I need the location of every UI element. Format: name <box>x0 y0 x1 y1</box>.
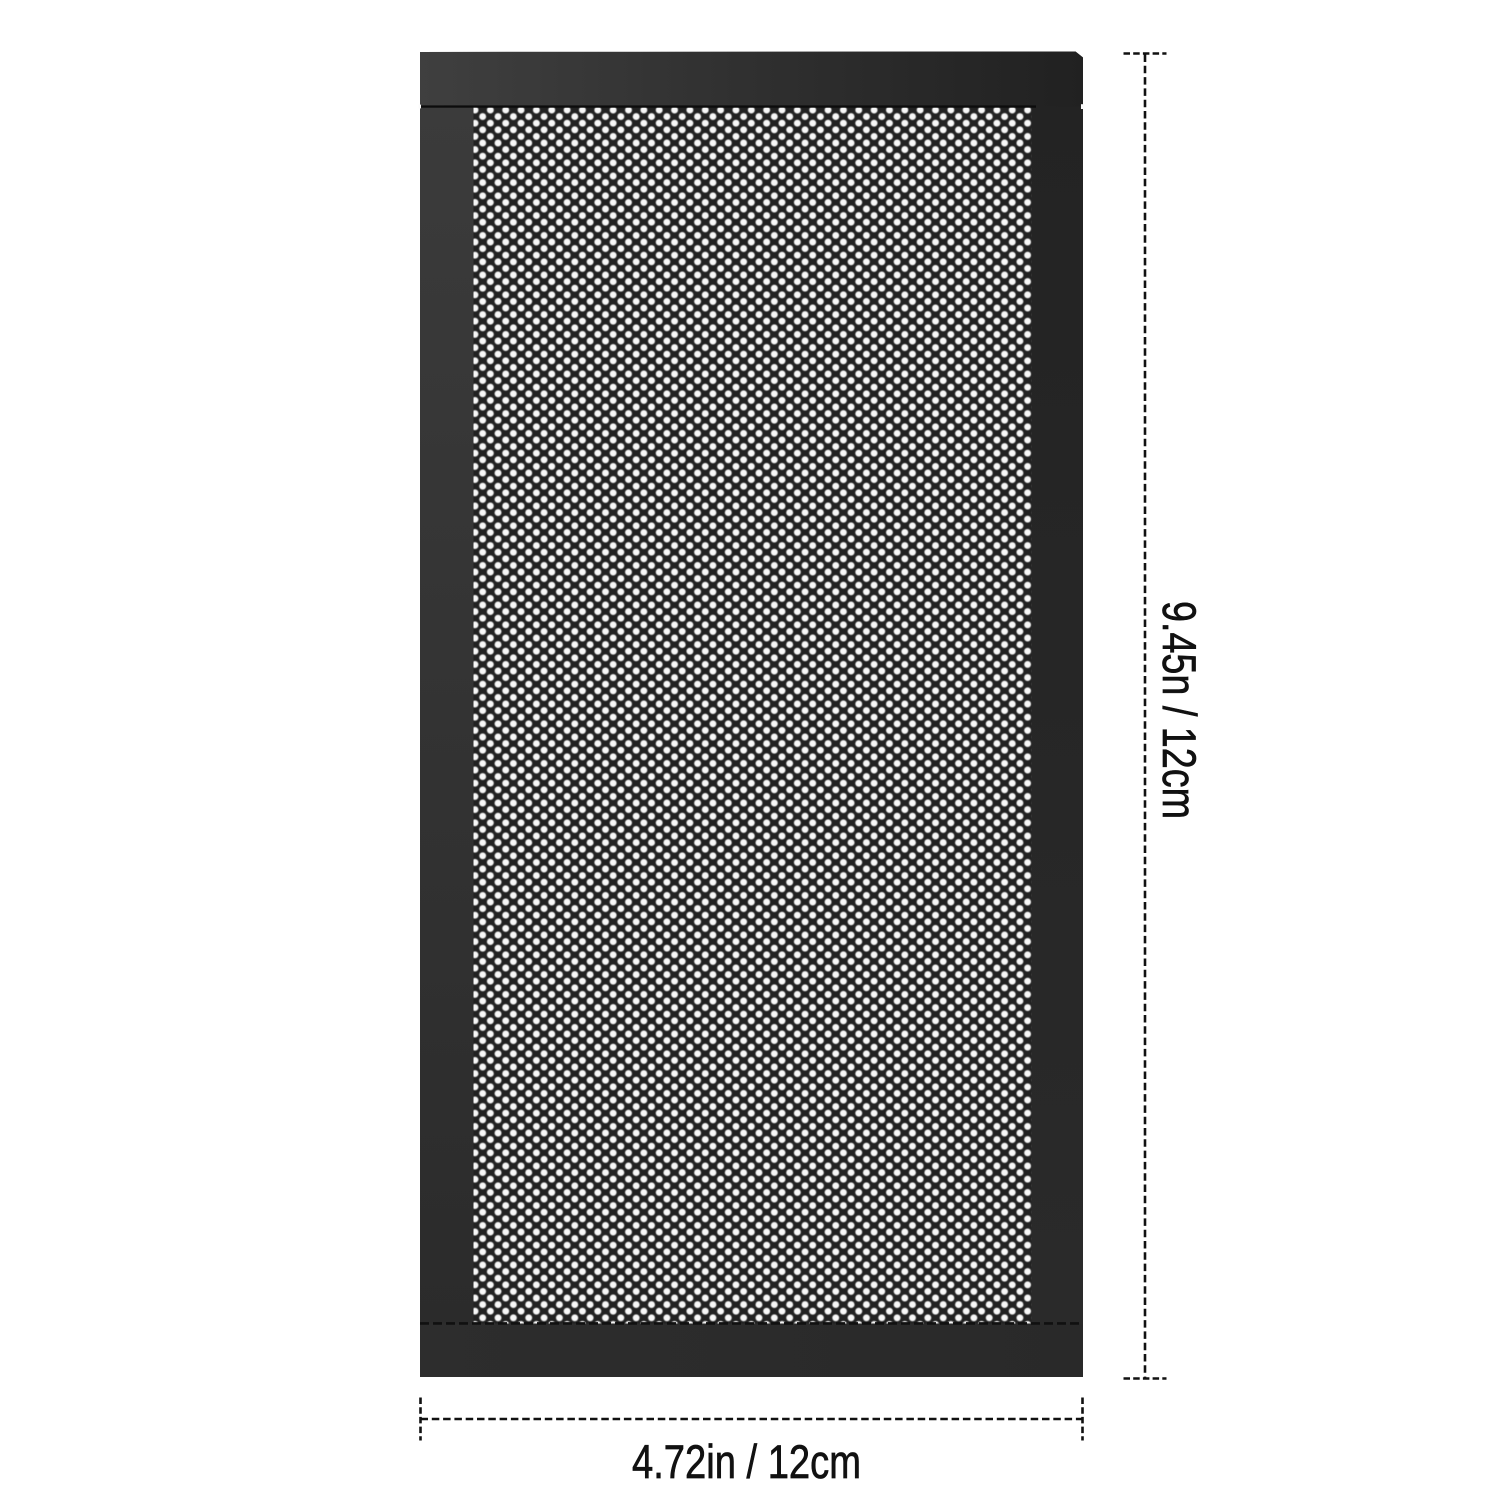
svg-text:4.72in / 12cm: 4.72in / 12cm <box>632 1436 861 1489</box>
svg-text:9.45n / 12cm: 9.45n / 12cm <box>1152 601 1205 819</box>
